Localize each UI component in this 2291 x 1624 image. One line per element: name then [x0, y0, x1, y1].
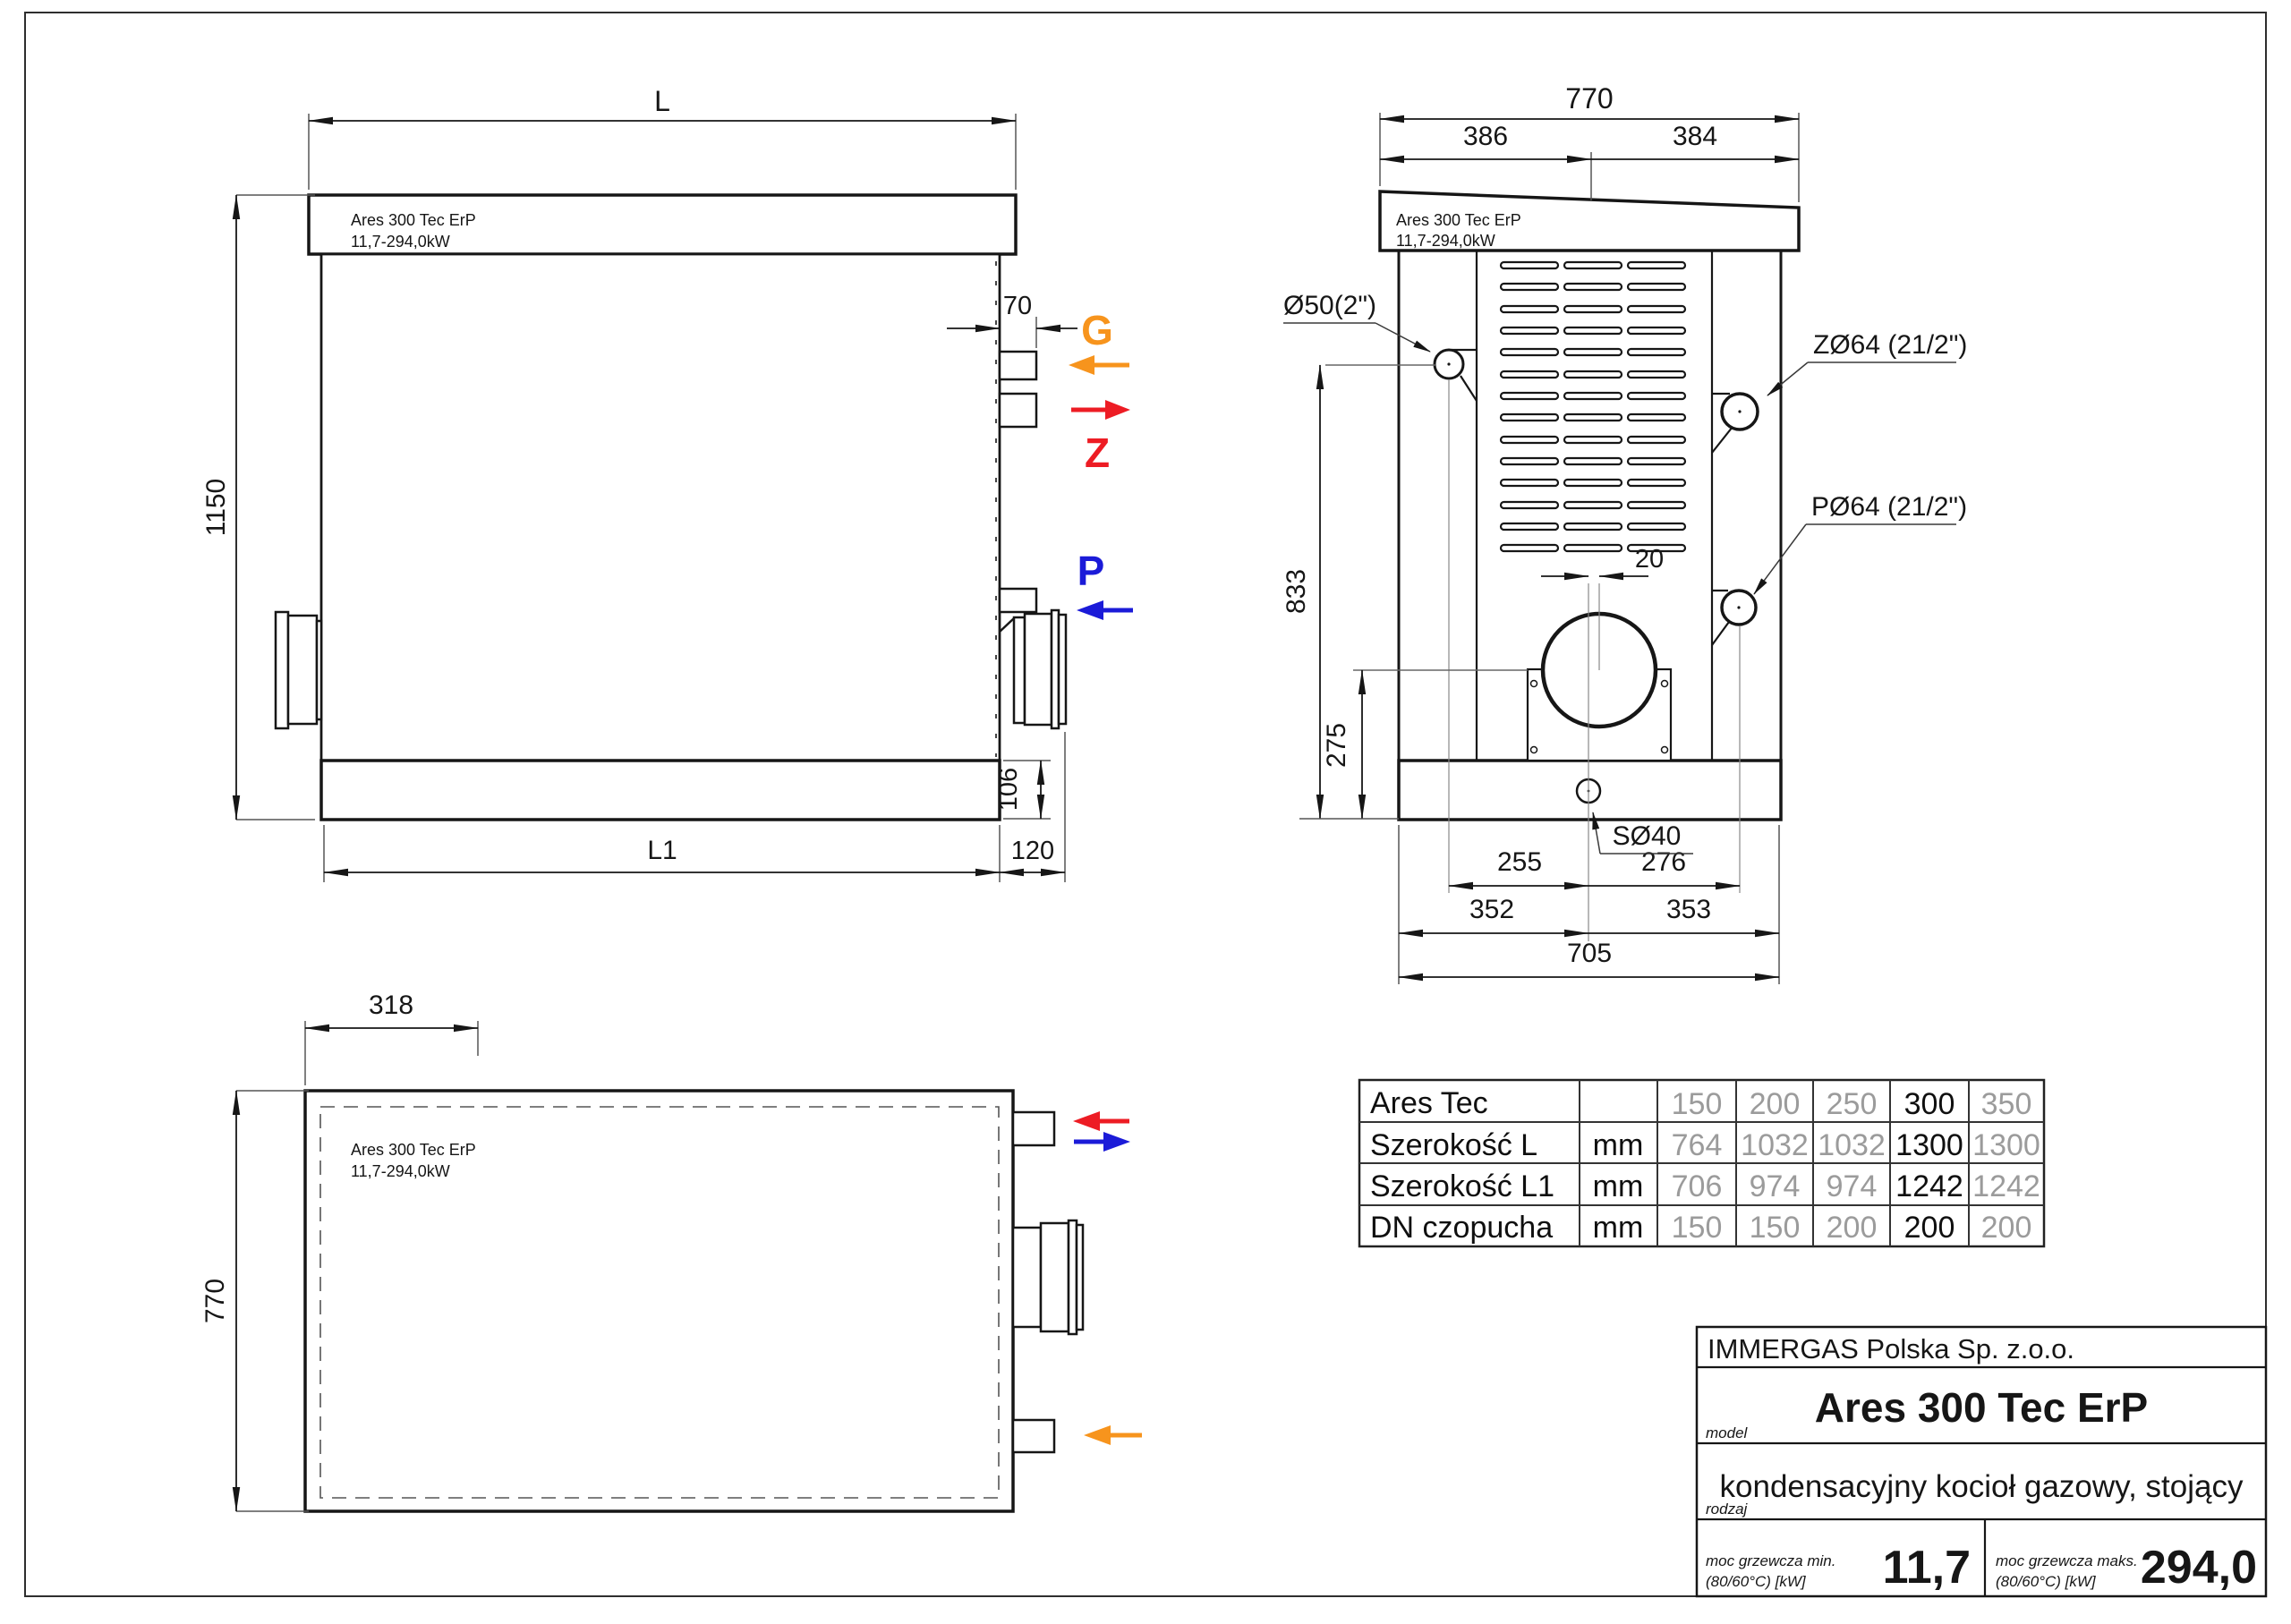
table-model-300: 300 — [1904, 1087, 1955, 1121]
side-view — [276, 195, 1066, 820]
table-row-l1-unit: mm — [1593, 1169, 1644, 1203]
dim-label-L: L — [654, 85, 670, 117]
return-port-letter: P — [1077, 548, 1105, 594]
table-row-l-label: Szerokość L — [1370, 1128, 1537, 1162]
side-unit-label-line2: 11,7-294,0kW — [351, 233, 450, 251]
dim-label-1150: 1150 — [201, 479, 231, 537]
table-model-200: 200 — [1750, 1087, 1801, 1121]
top-stub-gas — [1013, 1420, 1054, 1452]
dim-label-255: 255 — [1497, 847, 1542, 877]
power-max-value: 294,0 — [2141, 1542, 2257, 1594]
gas-port-letter: G — [1081, 307, 1113, 353]
dim-label-20: 20 — [1635, 545, 1664, 574]
table-model-250: 250 — [1827, 1087, 1878, 1121]
table-cell: 200 — [1827, 1211, 1878, 1245]
dim-label-120: 120 — [1011, 837, 1054, 865]
dim-label-275: 275 — [1322, 723, 1351, 768]
gas-stub — [1000, 352, 1036, 379]
dim-label-770: 770 — [1565, 82, 1613, 115]
spec-table: Ares Tec 150 200 250 300 350 Szerokość L… — [1359, 1080, 2044, 1246]
table-row-dn-unit: mm — [1593, 1211, 1644, 1245]
technical-drawing-page: L 1150 70 106 L1 120 Ares 300 Tec ErP 11… — [0, 0, 2291, 1620]
dim-label-353: 353 — [1666, 895, 1711, 924]
dim-label-276: 276 — [1641, 847, 1686, 877]
company-name: IMMERGAS Polska Sp. z.o.o. — [1708, 1333, 2074, 1365]
front-unit-label-line2: 11,7-294,0kW — [1396, 232, 1495, 250]
table-model-150: 150 — [1672, 1087, 1723, 1121]
table-cell: 150 — [1672, 1211, 1723, 1245]
power-min-label: moc grzewcza min. — [1706, 1552, 1835, 1569]
power-max-label: moc grzewcza maks. — [1996, 1552, 2138, 1569]
table-model-350: 350 — [1981, 1087, 2032, 1121]
table-row-dn-label: DN czopucha — [1370, 1211, 1553, 1245]
top-unit-label-line1: Ares 300 Tec ErP — [351, 1141, 476, 1159]
callout-drain-label: SØ40 — [1613, 821, 1682, 851]
table-cell: 974 — [1827, 1169, 1878, 1203]
table-row-l-unit: mm — [1593, 1128, 1644, 1162]
top-unit-label-line2: 11,7-294,0kW — [351, 1162, 450, 1180]
table-cell: 1300 — [1972, 1128, 2040, 1162]
dim-label-106: 106 — [994, 768, 1023, 811]
side-unit-label-line1: Ares 300 Tec ErP — [351, 211, 476, 229]
dim-label-318: 318 — [369, 991, 413, 1020]
table-cell-highlight: 1300 — [1895, 1128, 1963, 1162]
side-body — [321, 254, 1000, 761]
dim-label-833: 833 — [1282, 569, 1311, 614]
front-unit-label-line1: Ares 300 Tec ErP — [1396, 211, 1521, 229]
table-cell: 150 — [1750, 1211, 1801, 1245]
callout-supply-label: ZØ64 (21/2") — [1813, 330, 1967, 360]
dim-label-386: 386 — [1463, 122, 1508, 151]
dim-label-top-770: 770 — [200, 1279, 230, 1323]
title-block: IMMERGAS Polska Sp. z.o.o. model Ares 30… — [1697, 1327, 2266, 1596]
side-base — [321, 761, 1000, 820]
supply-port-letter: Z — [1085, 429, 1110, 476]
dim-label-70: 70 — [1003, 292, 1032, 320]
side-left-pipe — [276, 612, 321, 728]
dim-label-L1: L1 — [647, 836, 677, 865]
drawing-canvas: L 1150 70 106 L1 120 Ares 300 Tec ErP 11… — [0, 0, 2291, 1620]
table-header-label: Ares Tec — [1370, 1086, 1488, 1120]
power-max-sub: (80/60°C) [kW] — [1996, 1573, 2097, 1590]
table-cell: 974 — [1750, 1169, 1801, 1203]
model-field-label: model — [1706, 1424, 1749, 1441]
dim-label-705: 705 — [1567, 939, 1612, 968]
callout-return-label: PØ64 (21/2") — [1811, 492, 1967, 522]
table-cell: 1032 — [1741, 1128, 1809, 1162]
table-cell: 1032 — [1818, 1128, 1886, 1162]
callout-gas-label: Ø50(2") — [1283, 291, 1376, 320]
return-stub — [1000, 589, 1036, 612]
table-cell: 706 — [1672, 1169, 1723, 1203]
type-value: kondensacyjny kocioł gazowy, stojący — [1720, 1469, 2244, 1504]
power-min-value: 11,7 — [1883, 1542, 1971, 1594]
table-cell-highlight: 200 — [1904, 1211, 1955, 1245]
power-min-sub: (80/60°C) [kW] — [1706, 1573, 1807, 1590]
top-stub-supply — [1013, 1112, 1054, 1145]
top-mid-pipe — [1013, 1220, 1083, 1334]
table-cell-highlight: 1242 — [1895, 1169, 1963, 1203]
supply-stub — [1000, 394, 1036, 427]
model-value: Ares 300 Tec ErP — [1815, 1384, 2149, 1431]
table-cell: 1242 — [1972, 1169, 2040, 1203]
dim-label-352: 352 — [1469, 895, 1514, 924]
dim-label-384: 384 — [1673, 122, 1717, 151]
table-cell: 764 — [1672, 1128, 1723, 1162]
table-row-l1-label: Szerokość L1 — [1370, 1169, 1554, 1203]
table-cell: 200 — [1981, 1211, 2032, 1245]
